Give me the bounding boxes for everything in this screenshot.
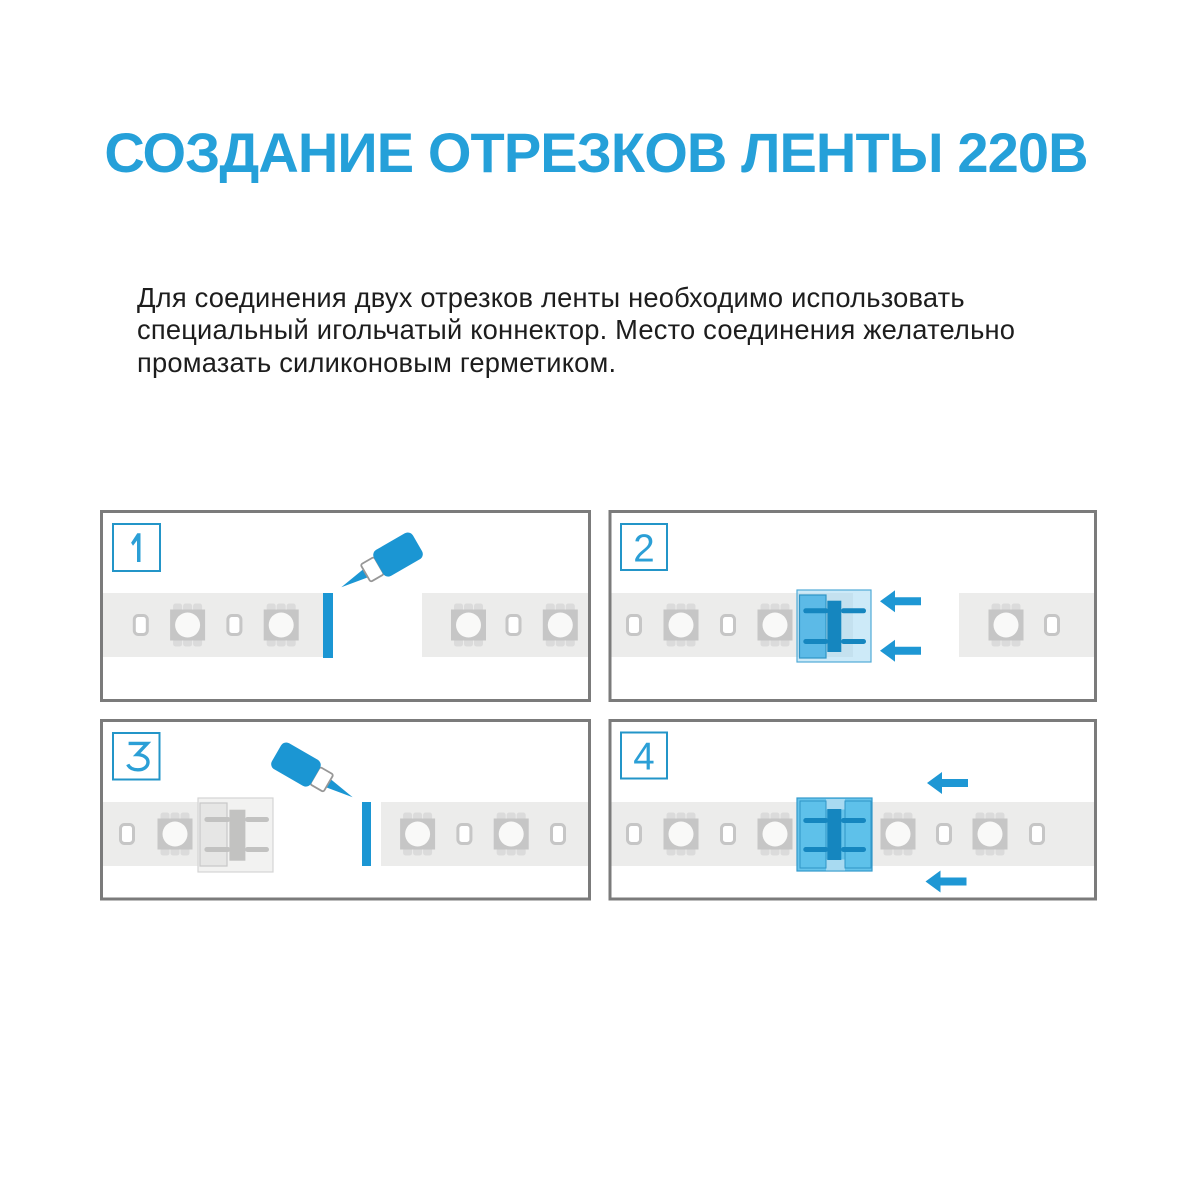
svg-text:4: 4: [633, 736, 654, 779]
svg-text:2: 2: [633, 528, 654, 571]
